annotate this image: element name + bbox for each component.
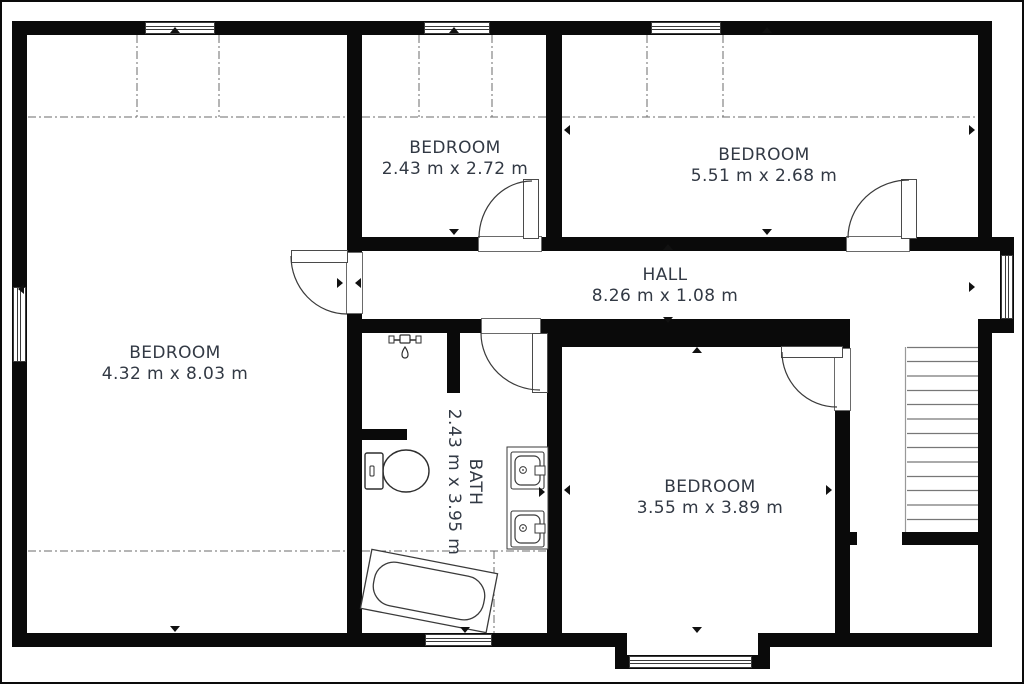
door-opening <box>481 318 541 334</box>
wall-hall-bottom <box>362 319 850 333</box>
bathtub-icon <box>360 549 497 632</box>
toilet-icon <box>365 450 429 492</box>
room-name: BEDROOM <box>691 145 838 166</box>
shower-head-icon <box>389 335 421 358</box>
wall-exterior-bottom-right <box>770 633 992 647</box>
wall-exterior-bottom-left <box>12 633 615 647</box>
wall-exterior-right-upper <box>978 21 992 251</box>
room-dimensions: 2.43 m x 2.72 m <box>382 159 529 180</box>
room-dimensions: 4.32 m x 8.03 m <box>102 364 249 385</box>
room-name: BATH <box>464 409 485 556</box>
room-dimensions: 3.55 m x 3.89 m <box>637 498 784 519</box>
wall-bath-stub-vertical <box>447 333 460 393</box>
door-leaf <box>781 346 843 358</box>
room-name: BEDROOM <box>382 138 529 159</box>
window <box>13 287 26 362</box>
wall-left-bedroom-divider <box>347 35 362 647</box>
room-name: HALL <box>592 265 739 286</box>
floor-plan: BEDROOM 4.32 m x 8.03 m BEDROOM 2.43 m x… <box>0 0 1024 684</box>
wall-bedroom-br-top <box>562 333 850 347</box>
wall-top-bedrooms-divider <box>546 35 562 251</box>
window <box>651 22 721 34</box>
wall-hall-niche-bottom <box>978 319 1014 333</box>
wall-bath-bedroom-divider <box>547 333 562 633</box>
wall-bath-stub-horizontal <box>362 429 407 440</box>
door-leaf <box>523 179 539 239</box>
staircase <box>906 347 979 532</box>
door-leaf <box>291 250 348 263</box>
room-dimensions: 5.51 m x 2.68 m <box>691 166 838 187</box>
window <box>424 22 490 34</box>
double-sink-icon <box>507 447 548 549</box>
room-label-bedroom-left: BEDROOM 4.32 m x 8.03 m <box>102 343 249 385</box>
door-opening <box>346 252 363 314</box>
wall-stairwell-bottom <box>902 532 992 545</box>
room-dimensions: 2.43 m x 3.95 m <box>443 409 464 556</box>
room-label-hall: HALL 8.26 m x 1.08 m <box>592 265 739 307</box>
wall-exterior-right-lower <box>978 319 992 647</box>
room-label-bedroom-top-middle: BEDROOM 2.43 m x 2.72 m <box>382 138 529 180</box>
room-label-bath: BATH 2.43 m x 3.95 m <box>443 409 485 556</box>
door-leaf <box>532 333 548 393</box>
room-name: BEDROOM <box>637 477 784 498</box>
window <box>1001 255 1013 319</box>
wall-hall-top <box>362 237 1014 251</box>
room-label-bedroom-bottom-right: BEDROOM 3.55 m x 3.89 m <box>637 477 784 519</box>
wall-stub-landing <box>850 532 857 545</box>
room-label-bedroom-top-right: BEDROOM 5.51 m x 2.68 m <box>691 145 838 187</box>
window <box>145 22 215 34</box>
room-dimensions: 8.26 m x 1.08 m <box>592 286 739 307</box>
room-name: BEDROOM <box>102 343 249 364</box>
door-leaf <box>901 179 917 239</box>
window <box>629 656 752 668</box>
window <box>425 634 492 646</box>
